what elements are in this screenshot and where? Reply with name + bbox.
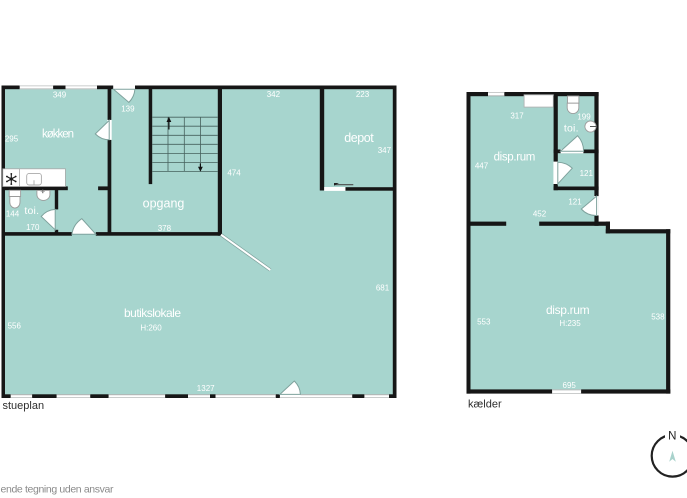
svg-text:H:235: H:235	[559, 319, 581, 328]
svg-text:538: 538	[651, 312, 665, 321]
svg-text:butikslokale: butikslokale	[124, 306, 181, 320]
svg-text:køkken: køkken	[42, 129, 74, 141]
svg-text:452: 452	[533, 210, 547, 219]
svg-text:553: 553	[477, 318, 491, 327]
svg-text:disp.rum: disp.rum	[494, 151, 536, 163]
svg-text:1327: 1327	[197, 384, 215, 393]
svg-text:349: 349	[53, 91, 67, 100]
svg-text:121: 121	[580, 169, 594, 178]
svg-text:139: 139	[121, 105, 135, 114]
svg-text:556: 556	[8, 321, 22, 330]
svg-text:199: 199	[577, 112, 591, 121]
svg-text:223: 223	[356, 90, 370, 99]
svg-text:N: N	[668, 430, 676, 442]
svg-text:695: 695	[563, 381, 577, 390]
svg-text:474: 474	[227, 168, 241, 177]
svg-text:kælder: kælder	[468, 398, 502, 410]
svg-text:depot: depot	[344, 131, 374, 145]
svg-text:toi.: toi.	[24, 205, 39, 217]
svg-text:H:260: H:260	[140, 324, 162, 333]
svg-text:681: 681	[376, 284, 390, 293]
svg-text:ende tegning uden ansvar: ende tegning uden ansvar	[1, 484, 115, 496]
svg-text:opgang: opgang	[143, 197, 185, 211]
svg-text:stueplan: stueplan	[3, 400, 45, 412]
svg-text:317: 317	[510, 111, 524, 120]
svg-text:378: 378	[158, 224, 172, 233]
svg-text:disp.rum: disp.rum	[546, 303, 590, 317]
svg-text:295: 295	[5, 134, 19, 143]
svg-text:347: 347	[378, 146, 392, 155]
svg-text:toi.: toi.	[564, 122, 579, 134]
svg-text:144: 144	[6, 210, 20, 219]
svg-text:121: 121	[568, 198, 582, 207]
svg-text:170: 170	[26, 223, 40, 232]
svg-text:447: 447	[475, 162, 489, 171]
svg-text:342: 342	[267, 90, 281, 99]
